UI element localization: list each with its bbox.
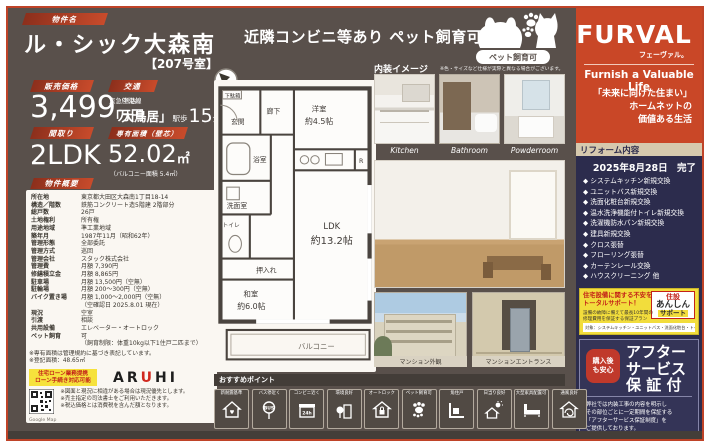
reform-status: 完了: [677, 163, 696, 174]
access-station: 「大鳥居」: [109, 106, 172, 125]
points-header-bar: おすすめポイント: [214, 374, 565, 386]
table-row: 現況空室: [29, 310, 214, 318]
reform-item: 洗面化粧台新規交換: [583, 197, 684, 208]
reform-item: ユニットバス新規交換: [583, 187, 684, 198]
furval-logo-kana: フェーヴァル。: [639, 50, 688, 60]
loan-badge: 住宅ローン業務提携 ローン手続き対応可能: [29, 369, 97, 386]
point-convenience: コンビニ近く 24h: [289, 389, 324, 429]
environment-icon: [334, 400, 354, 420]
floorplan-card: 下駄箱 玄関 廊下 洋室 約4.5帖 浴室 洗面室 トイレ 押入れ 和室 約6.…: [214, 80, 376, 372]
reform-list: システムキッチン新規交換 ユニットバス新規交換 洗面化粧台新規交換 温水洗浄機能…: [583, 176, 684, 282]
overview-label: 物件概要: [43, 178, 81, 189]
reform-item: 建具新規交換: [583, 229, 684, 240]
kitchen-photo: [374, 74, 435, 144]
earthquake-standard-icon: [222, 400, 242, 420]
reform-date-line: 2025年8月28日 完了: [593, 160, 696, 174]
powderroom-photo: [504, 74, 565, 144]
anshin-support-logo: 住設 あんしん サポート: [651, 291, 695, 319]
bathroom-photo-label: Bathroom: [439, 146, 500, 155]
svg-text:LDK: LDK: [323, 221, 340, 231]
table-row: 総戸数26戸: [29, 209, 214, 217]
reform-item: フローリング張替: [583, 250, 684, 261]
access-info: 京急空港線 「大鳥居」 駅歩 15 分: [109, 95, 220, 125]
pet-paw-icon: [409, 400, 429, 420]
access-line: 京急空港線: [109, 95, 220, 105]
access-label: 交通: [123, 81, 144, 92]
point-corner-unit: 角住戸: [439, 389, 474, 429]
ventilation-icon: [559, 400, 579, 420]
window: [367, 259, 371, 301]
powderroom-photo-label: Powderroom: [504, 146, 565, 155]
svg-text:浴室: 浴室: [253, 155, 267, 164]
point-bus: バス停近く BUS: [252, 389, 287, 429]
support-desc: 設備の故障に備えて最長10年間の 修理費用を保証する保証プラン: [583, 311, 653, 323]
point-autolock: オートロック: [364, 389, 399, 429]
cat-icon: [535, 13, 558, 48]
support-targets: 対象：システムキッチン・ユニットバス・洗面化粧台・トイレ: [583, 323, 695, 332]
setsubi-support-box: 住宅設備に関する不安を トータルサポート！ 住設 あんしん サポート 設備の故障…: [579, 288, 699, 335]
pet-allowed-badge: ペット飼育可: [476, 50, 550, 64]
layout-label: 間取り: [47, 128, 76, 139]
table-row: 管理費月額 7,390円: [29, 263, 214, 271]
table-row: 築年月1987年11月（昭和62年）: [29, 233, 214, 241]
photo-caption: マンション外観: [374, 356, 467, 367]
access-chip: 交通: [108, 80, 158, 92]
qr-caption: Google Map: [29, 418, 56, 423]
point-sunlight: 日当り良好: [477, 389, 512, 429]
svg-text:洋室: 洋室: [312, 105, 327, 114]
qr-code: [29, 389, 54, 414]
bus-stop-icon: BUS: [259, 400, 279, 420]
dog-icon: [478, 17, 522, 48]
building-exterior-photo: マンション外観: [374, 292, 467, 367]
layout-chip: 間取り: [30, 127, 94, 139]
table-row: 用途地域準工業地域: [29, 225, 214, 233]
divider: [584, 64, 694, 65]
bathroom-photo: [439, 74, 500, 144]
disclaimer-line: ※税込価格とは消費税を含んだ額となります。: [60, 403, 188, 410]
area-unit: ㎡: [177, 148, 190, 167]
room-number: 【207号室】: [78, 55, 218, 72]
corner-unit-icon: [447, 400, 467, 420]
balcony-door: [256, 319, 330, 323]
overview-chip: 物件概要: [30, 178, 94, 189]
after-service-desc: 弊社では内装工事の内容を明示し その部位ごとに一定期間を保証する 「アフターサー…: [586, 401, 672, 433]
svg-text:洗面室: 洗面室: [227, 201, 248, 210]
registered-area-note: ※登記面積：48.65㎡: [29, 358, 214, 365]
svg-text:BUS: BUS: [264, 406, 274, 412]
top-banner-text: 近隣コンビニ等あり ペット飼育可能: [244, 26, 498, 47]
table-row: 引渡相談: [29, 317, 214, 325]
svg-text:約6.0帖: 約6.0帖: [237, 301, 265, 311]
table-row: 管理会社スタック株式会社: [29, 256, 214, 264]
area-value-group: 52.02 ㎡: [108, 142, 190, 167]
point-earthquake: 新耐震基準: [214, 389, 249, 429]
table-row: （飼育制限：体重10kg以下1住戸二匹まで）: [29, 340, 214, 348]
map-disclaimer-row: Google Map ※図面と現況に相違がある場合は現況優先とします。 ※売主指…: [29, 389, 214, 423]
brand-catch: 「未来に向けた住まい」 ホームネットの 価値ある生活: [593, 88, 692, 127]
svg-text:和室: 和室: [244, 289, 259, 298]
svg-text:約13.2帖: 約13.2帖: [311, 234, 353, 247]
area-value: 52.02: [108, 142, 177, 167]
table-row: 駐輪場月額 200〜300円（空無）: [29, 286, 214, 294]
autolock-icon: [372, 400, 392, 420]
bed-icon: [522, 400, 542, 420]
anshin-tab: 購入後 も安心: [586, 349, 620, 383]
disclaimer-line: ※図面と現況に相違がある場合は現況優先とします。: [60, 389, 188, 396]
disclaimer-line: ※売主指定の司法書士をご利用いただきます。: [60, 396, 188, 403]
svg-text:24h: 24h: [302, 411, 311, 417]
reform-item: 温水洗浄機能付トイレ新規交換: [583, 208, 684, 219]
bottom-band: [8, 431, 702, 439]
point-ventilation: 通風良好: [552, 389, 587, 429]
furval-logo: FURVAL: [576, 20, 692, 49]
area-disclaimer: ※専有面積は管理規約に基づき表記しています。: [29, 351, 214, 358]
access-walk-prefix: 駅歩: [173, 113, 188, 124]
convenience-store-icon: 24h: [297, 400, 317, 420]
support-heading: 住宅設備に関する不安を トータルサポート！: [583, 292, 652, 308]
sunlight-icon: [484, 400, 504, 420]
table-row: 所在地東京都大田区大森南1丁目18-14: [29, 194, 214, 202]
access-walk-min: 15: [189, 107, 213, 125]
after-service-box: 購入後 も安心 アフター サービス 保 証 付 弊社では内装工事の内容を明示し …: [579, 339, 699, 436]
price-value: 3,499: [30, 92, 116, 124]
interior-note: ※色・サイズなど仕様が実際と異なる場合がございます。: [440, 65, 563, 72]
table-row: （空確認日 2025.8.01 現在）: [29, 302, 214, 310]
point-pet: ペット飼育可: [402, 389, 437, 429]
points-row: 新耐震基準 バス停近く BUS コンビニ近く 24h 環境良好: [214, 389, 569, 429]
property-name-label: 物件名: [50, 14, 79, 25]
overview-card: 所在地東京都大田区大森南1丁目18-14 構造／階数鉄筋コンクリート造5階建 2…: [26, 190, 217, 423]
loan-row: 住宅ローン業務提携 ローン手続き対応可能 ARUHI: [29, 369, 214, 386]
pet-silhouettes-icon: [470, 10, 558, 50]
table-row: 管理方式巡回: [29, 248, 214, 256]
building-entrance-photo: マンションエントランス: [472, 292, 565, 367]
svg-text:R: R: [359, 158, 364, 165]
point-environment: 環境良好: [327, 389, 362, 429]
reform-item: 洗濯機防水パン新規交換: [583, 218, 684, 229]
aruhi-logo: ARUHI: [113, 370, 178, 386]
reform-item: システムキッチン新規交換: [583, 176, 684, 187]
svg-text:約4.5帖: 約4.5帖: [305, 116, 333, 126]
balcony-note: （バルコニー面積 5.4㎡）: [110, 169, 181, 178]
living-room-photo: [374, 160, 565, 288]
svg-text:玄関: 玄関: [231, 117, 245, 126]
area-label: 専有面積（壁芯）: [115, 128, 181, 138]
divider: [586, 396, 692, 397]
reform-column: リフォーム内容 2025年8月28日 完了 システムキッチン新規交換 ユニットバ…: [576, 143, 702, 439]
svg-text:トイレ: トイレ: [223, 223, 241, 229]
svg-text:バルコニー: バルコニー: [298, 342, 335, 351]
kitchen-photo-label: Kitchen: [374, 146, 435, 155]
table-row: 構造／階数鉄筋コンクリート造5階建 2階部分: [29, 202, 214, 210]
table-row: バイク置き場月額 1,000〜2,000円（空無）: [29, 294, 214, 302]
property-name-chip: 物件名: [22, 13, 108, 25]
point-furniture: 大型家具配置可: [514, 389, 549, 429]
after-service-title: アフター サービス 保 証 付: [626, 344, 686, 394]
photo-caption: マンションエントランス: [472, 356, 565, 367]
map-block: Google Map: [29, 389, 56, 423]
svg-text:下駄箱: 下駄箱: [225, 91, 241, 99]
reform-header: リフォーム内容: [576, 143, 702, 156]
table-row: 管理形態全部委託: [29, 240, 214, 248]
svg-text:廊下: 廊下: [267, 107, 281, 116]
table-row: 共用設備エレベーター・オートロック: [29, 325, 214, 333]
flyer-page: 物件名 ル・シック大森南 【207号室】 近隣コンビニ等あり ペット飼育可能 ペ…: [6, 6, 704, 441]
layout-value: 2LDK: [30, 140, 101, 171]
table-row: 修繕積立金月額 8,865円: [29, 271, 214, 279]
brand-box: FURVAL フェーヴァル。 Furnish a Valuable Life 「…: [576, 8, 702, 143]
reform-date: 2025年8月28日: [593, 163, 668, 174]
reform-item: クロス張替: [583, 240, 684, 251]
table-row: 土地権利所有権: [29, 217, 214, 225]
reform-item: カーテンレール交換: [583, 261, 684, 272]
floorplan: 下駄箱 玄関 廊下 洋室 約4.5帖 浴室 洗面室 トイレ 押入れ 和室 約6.…: [214, 80, 376, 372]
area-chip: 専有面積（壁芯）: [108, 127, 188, 139]
reform-item: ハウスクリーニング 他: [583, 271, 684, 282]
window: [367, 185, 371, 233]
svg-text:押入れ: 押入れ: [256, 266, 277, 275]
